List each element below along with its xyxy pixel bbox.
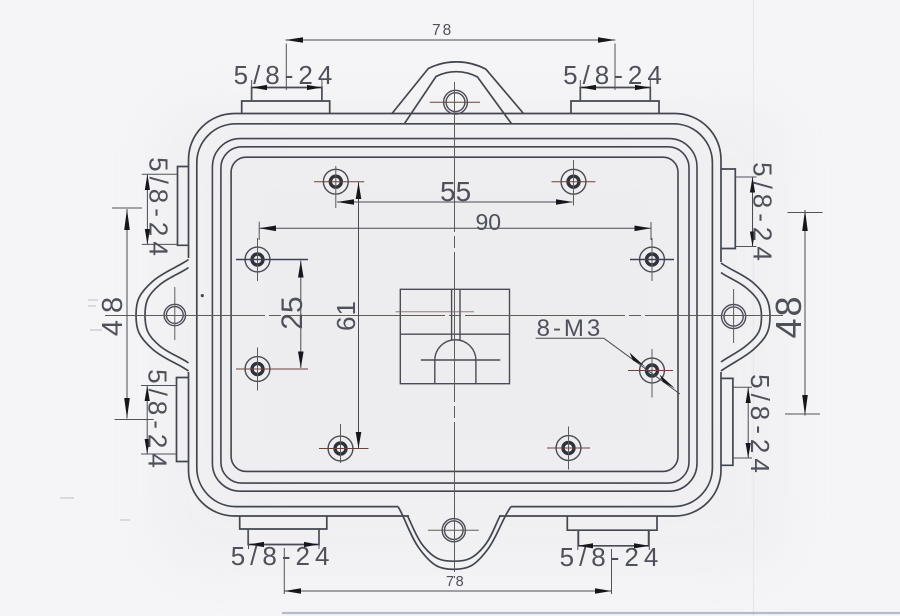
svg-text:25: 25: [276, 296, 309, 329]
svg-text:5/8-24: 5/8-24: [560, 542, 664, 572]
svg-text:5/8-24: 5/8-24: [745, 374, 775, 478]
svg-text:78: 78: [446, 574, 465, 590]
svg-text:90: 90: [476, 209, 502, 235]
svg-text:5/8-24: 5/8-24: [144, 157, 174, 261]
svg-text:55: 55: [440, 176, 471, 207]
svg-text:78: 78: [432, 22, 453, 39]
svg-text:5/8-24: 5/8-24: [563, 60, 667, 90]
svg-text:5/8-24: 5/8-24: [748, 162, 778, 266]
svg-text:61: 61: [331, 300, 361, 331]
svg-text:5/8-24: 5/8-24: [143, 369, 173, 473]
svg-text:48: 48: [768, 294, 809, 338]
